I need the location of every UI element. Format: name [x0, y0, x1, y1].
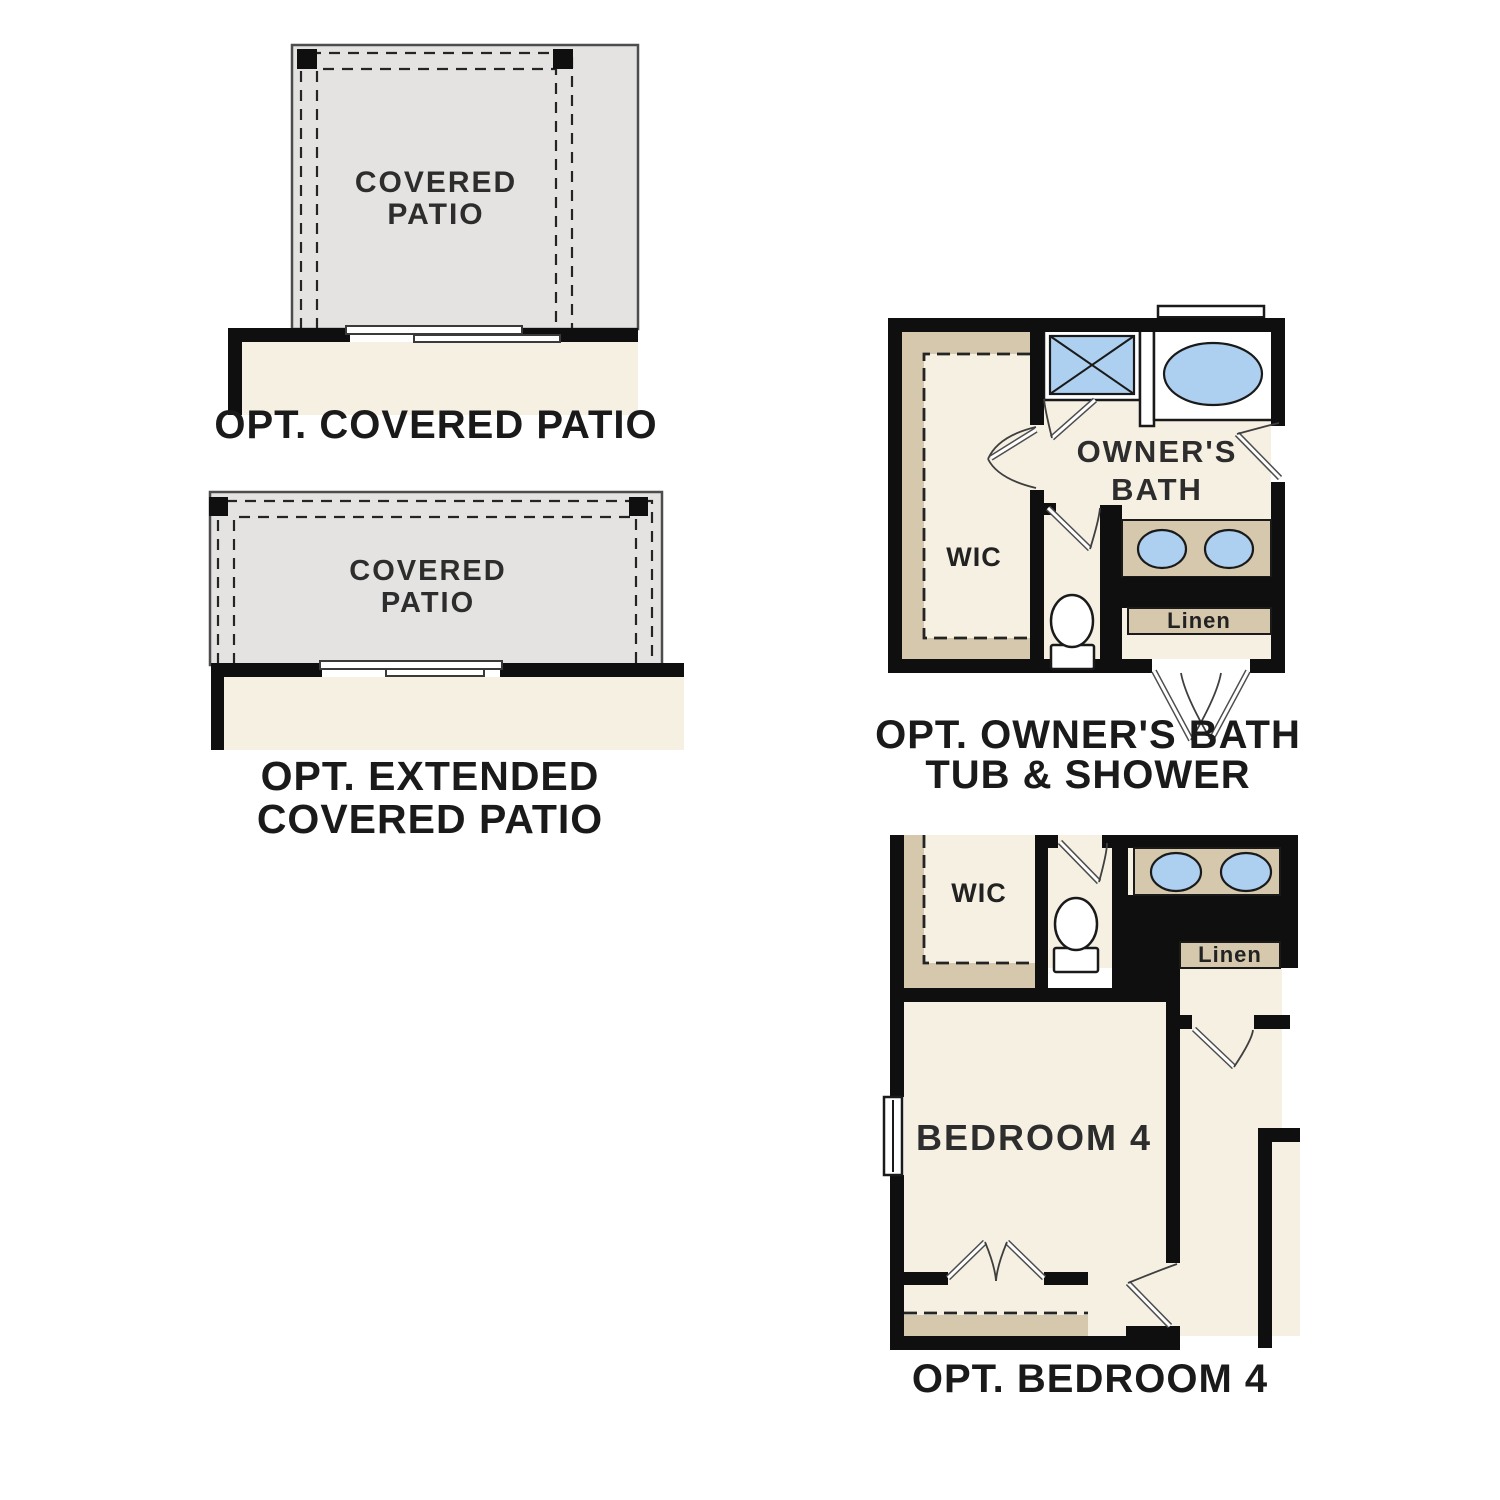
- bedroom-top-wall: [890, 988, 1180, 1002]
- sliding-door-panel-outer: [346, 326, 522, 334]
- floor-plan-drawing: COVERED PATIO OPT. COVERED PATIO COVERED…: [0, 0, 1500, 1500]
- covered-patio-label-line2: PATIO: [387, 198, 484, 231]
- door-jamb-stub: [1126, 1326, 1180, 1338]
- house-wall-left: [211, 663, 322, 677]
- sliding-door-panel-inner: [414, 335, 560, 342]
- house-wall-left: [228, 328, 350, 342]
- toilet-tank: [1055, 898, 1097, 950]
- closet-shelf: [904, 1315, 1088, 1336]
- caption-owners-bath-line1: OPT. OWNER'S BATH: [875, 713, 1301, 757]
- linen-label: Linen: [1198, 942, 1262, 967]
- caption-covered-patio: OPT. COVERED PATIO: [214, 403, 657, 447]
- toilet-tank: [1051, 595, 1093, 647]
- toilet-room-top-stub: [1048, 835, 1058, 848]
- caption-extended-patio-line1: OPT. EXTENDED: [261, 753, 600, 799]
- shower-glass-panel: [1140, 330, 1154, 426]
- top-wall: [1130, 835, 1298, 848]
- covered-patio-label-line1: COVERED: [349, 555, 506, 587]
- sink-left: [1138, 530, 1186, 568]
- toilet-base: [1054, 948, 1098, 972]
- hall-wall-jog: [1258, 1128, 1300, 1142]
- linen-label: Linen: [1167, 608, 1231, 633]
- patio-post-left: [297, 49, 317, 69]
- closet-wall-left: [904, 1272, 948, 1285]
- bedroom4-figure: WIC Linen: [884, 835, 1300, 1401]
- sliding-door-panel-inner: [386, 669, 484, 676]
- left-wall-lower: [890, 1175, 904, 1350]
- owners-bath-label-line2: BATH: [1111, 472, 1203, 507]
- caption-extended-patio-line2: COVERED PATIO: [257, 796, 603, 842]
- bottom-wall: [890, 1336, 1180, 1350]
- toilet-room-right-wall: [1112, 835, 1128, 988]
- house-wall-right: [500, 663, 684, 677]
- owners-bath-label-line1: OWNER'S: [1077, 434, 1238, 469]
- bath-wall-left: [888, 318, 902, 673]
- house-wall-corner: [211, 663, 224, 750]
- bath-wall-right-upper: [1271, 318, 1285, 426]
- tub-basin: [1164, 343, 1262, 405]
- interior-floor: [224, 677, 684, 750]
- plumbing-wall: [1128, 895, 1298, 942]
- wic-floor: [924, 354, 1030, 638]
- wic-label: WIC: [946, 542, 1001, 572]
- wic-right-wall: [1035, 835, 1048, 988]
- bath-wall-top: [888, 318, 1285, 332]
- sink-right: [1221, 853, 1271, 891]
- covered-patio-label-line1: COVERED: [355, 166, 517, 199]
- covered-patio-figure: COVERED PATIO OPT. COVERED PATIO: [214, 45, 657, 447]
- wic-wall-upper: [1030, 332, 1044, 425]
- adjacent-floor-strip: [1272, 1142, 1300, 1336]
- patio-post-left: [209, 497, 228, 516]
- wic-wall-lower: [1030, 490, 1044, 673]
- hall-wall-right: [1258, 1142, 1272, 1348]
- bedroom4-label: BEDROOM 4: [916, 1117, 1152, 1158]
- caption-owners-bath-line2: TUB & SHOWER: [925, 753, 1250, 797]
- floor-plan-options-sheet: COVERED PATIO OPT. COVERED PATIO COVERED…: [0, 0, 1500, 1500]
- sink-left: [1151, 853, 1201, 891]
- closet-wall-right: [1044, 1272, 1088, 1285]
- sliding-door-panel-outer: [320, 661, 502, 669]
- patio-post-right: [629, 497, 648, 516]
- wic-label: WIC: [951, 878, 1006, 908]
- house-wall-corner: [228, 328, 242, 415]
- toilet-base: [1051, 645, 1094, 669]
- linen-door-stub-right: [1254, 1015, 1290, 1029]
- hallway-floor: [1166, 968, 1282, 1138]
- toilet-room-wall: [1100, 505, 1122, 673]
- sink-right: [1205, 530, 1253, 568]
- caption-bedroom4: OPT. BEDROOM 4: [912, 1357, 1268, 1401]
- plumbing-wall: [1122, 577, 1285, 608]
- patio-post-right: [553, 49, 573, 69]
- covered-patio-label-line2: PATIO: [381, 587, 475, 619]
- extended-covered-patio-figure: COVERED PATIO OPT. EXTENDED COVERED PATI…: [209, 492, 684, 842]
- left-wall-upper: [890, 835, 904, 1097]
- owners-bath-figure: WIC: [875, 306, 1301, 797]
- bedroom-right-wall: [1166, 1002, 1180, 1263]
- linen-door-stub-left: [1166, 1015, 1192, 1029]
